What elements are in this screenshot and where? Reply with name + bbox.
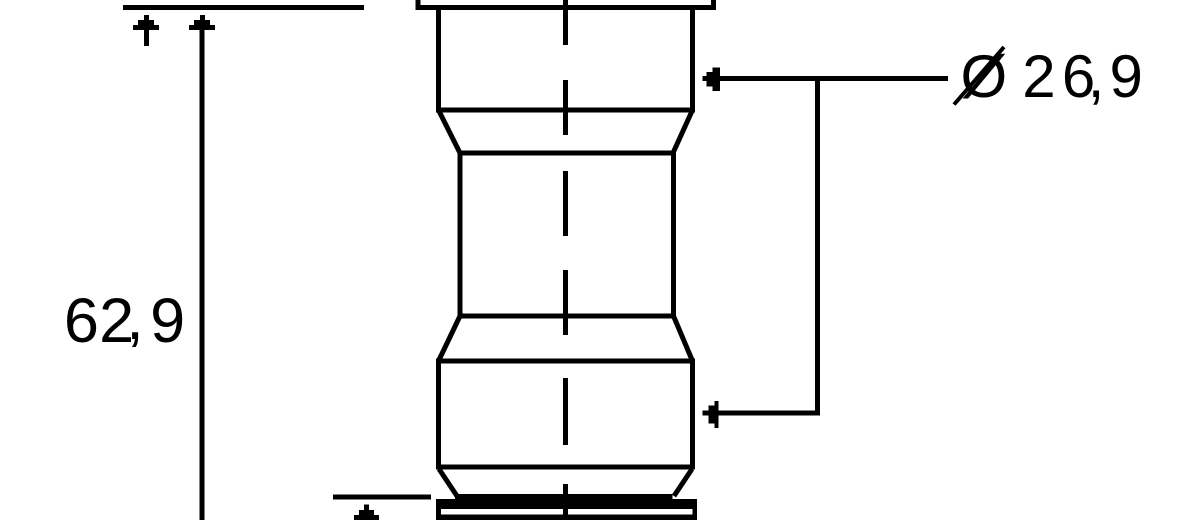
svg-text:9: 9 — [150, 286, 185, 356]
svg-text:,: , — [126, 283, 144, 353]
svg-text:,: , — [1088, 43, 1105, 110]
svg-text:6: 6 — [64, 286, 99, 356]
svg-text:9: 9 — [1110, 43, 1143, 110]
svg-text:2: 2 — [1022, 43, 1055, 110]
